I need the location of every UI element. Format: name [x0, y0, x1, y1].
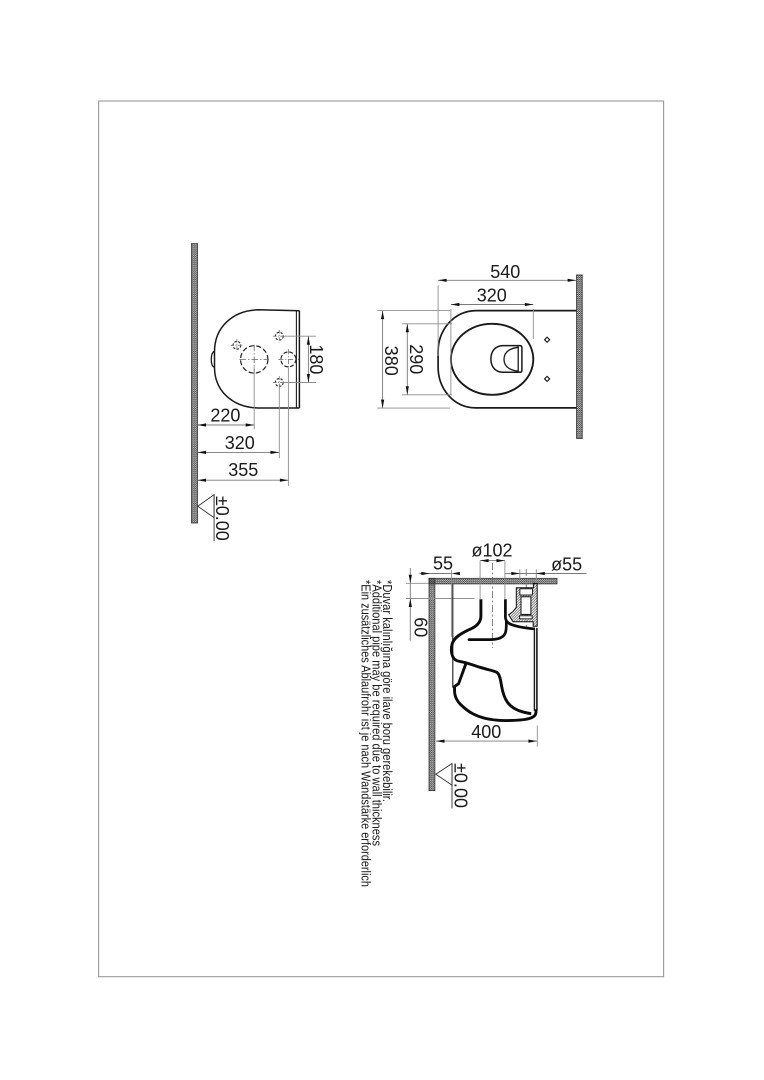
- svg-text:*Ein zusätzliches Ablaufrohr i: *Ein zusätzliches Ablaufrohr ist je nach…: [358, 580, 373, 887]
- svg-text:ø102: ø102: [471, 541, 512, 561]
- svg-text:220: 220: [210, 405, 240, 425]
- svg-text:380: 380: [381, 346, 401, 376]
- svg-text:±0.00: ±0.00: [212, 496, 232, 541]
- svg-text:ø55: ø55: [551, 555, 582, 575]
- svg-text:55: 55: [433, 554, 453, 574]
- svg-text:60: 60: [411, 617, 431, 637]
- svg-text:320: 320: [477, 285, 507, 305]
- svg-text:400: 400: [471, 722, 501, 742]
- svg-text:290: 290: [406, 344, 426, 374]
- svg-text:±0.00: ±0.00: [450, 763, 470, 808]
- svg-text:320: 320: [225, 433, 255, 453]
- svg-text:540: 540: [490, 262, 520, 282]
- svg-text:355: 355: [228, 460, 258, 480]
- svg-text:180: 180: [306, 344, 326, 374]
